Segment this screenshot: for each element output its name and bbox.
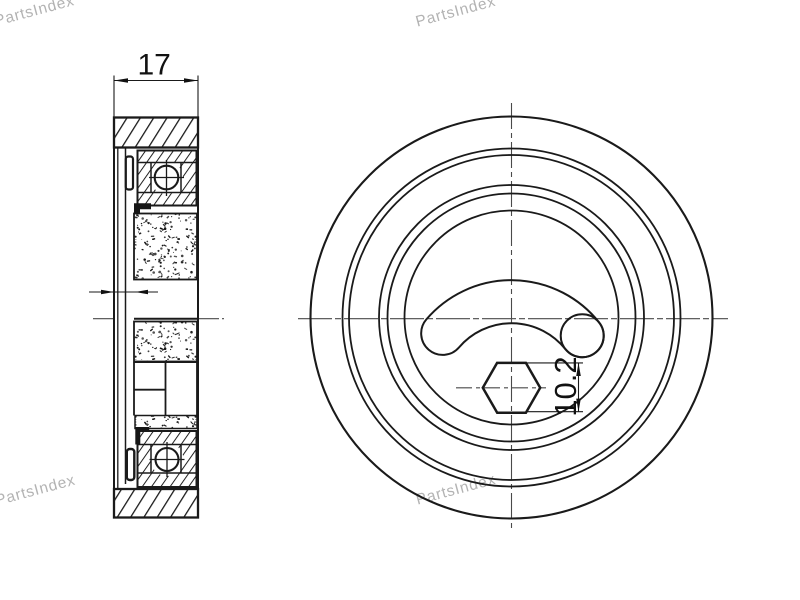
svg-text:PartsIndex: PartsIndex — [414, 0, 498, 31]
svg-text:10.2: 10.2 — [548, 356, 583, 416]
svg-text:PartsIndex: PartsIndex — [0, 472, 77, 510]
svg-text:PartsIndex: PartsIndex — [0, 0, 76, 30]
svg-text:17: 17 — [138, 49, 171, 82]
